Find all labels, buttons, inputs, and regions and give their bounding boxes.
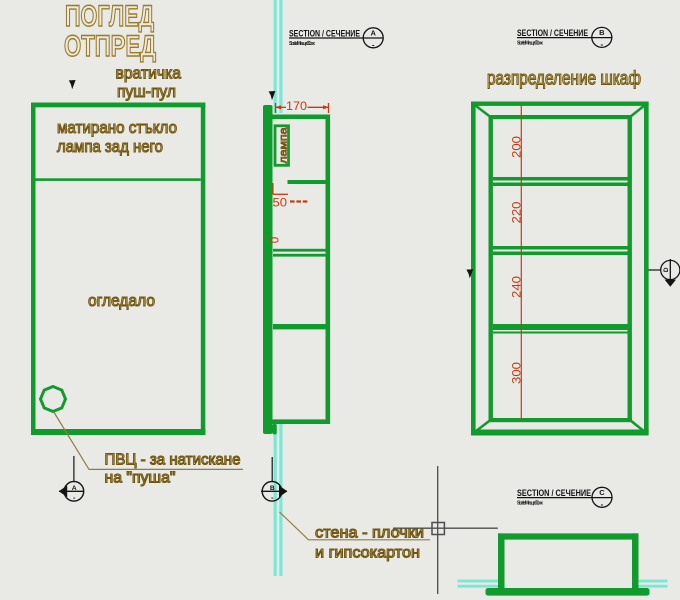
svg-text:D: D: [663, 267, 670, 272]
svg-text:Scale / Мащаб 1:xx: Scale / Мащаб 1:xx: [517, 499, 543, 506]
svg-text:лампа: лампа: [278, 127, 290, 163]
svg-text:-: -: [600, 40, 603, 49]
svg-text:SECTION / СЕЧЕНИЕ: SECTION / СЕЧЕНИЕ: [517, 28, 588, 38]
svg-text:300: 300: [512, 362, 524, 384]
svg-text:SECTION / СЕЧЕНИЕ: SECTION / СЕЧЕНИЕ: [289, 28, 360, 38]
svg-text:ПВЦ - за натискане: ПВЦ - за натискане: [105, 452, 241, 469]
svg-text:SECTION / СЕЧЕНИЕ: SECTION / СЕЧЕНИЕ: [517, 488, 591, 498]
svg-text:матирано стъкло: матирано стъкло: [57, 119, 177, 137]
svg-text:-: -: [601, 500, 604, 509]
svg-text:на "пуша": на "пуша": [105, 470, 176, 487]
svg-text:170: 170: [286, 101, 307, 113]
svg-text:ПОГЛЕД: ПОГЛЕД: [65, 0, 154, 33]
svg-text:200: 200: [512, 136, 524, 158]
svg-text:50: 50: [273, 197, 288, 209]
svg-text:вратичка: вратичка: [116, 64, 182, 82]
svg-text:ОТПРЕД: ОТПРЕД: [64, 30, 156, 63]
svg-text:C: C: [599, 488, 605, 497]
svg-text:240: 240: [512, 276, 524, 298]
svg-text:0: 0: [270, 237, 282, 243]
svg-text:лампа зад него: лампа зад него: [57, 138, 163, 156]
svg-text:Scale / Мащаб 1:xx: Scale / Мащаб 1:xx: [289, 40, 315, 47]
svg-text:и гипсокартон: и гипсокартон: [315, 545, 420, 562]
svg-text:огледало: огледало: [88, 292, 155, 310]
svg-text:Scale / Мащаб 1:xx: Scale / Мащаб 1:xx: [517, 39, 543, 46]
svg-text:разпределение шкаф: разпределение шкаф: [487, 69, 641, 90]
svg-text:220: 220: [512, 202, 524, 224]
svg-text:B: B: [270, 485, 275, 492]
svg-text:B: B: [599, 28, 605, 37]
svg-text:A: A: [72, 485, 77, 492]
svg-text:A: A: [370, 29, 376, 38]
svg-text:-: -: [372, 41, 375, 50]
svg-text:пуш-пул: пуш-пул: [117, 83, 176, 101]
svg-text:стена - плочки: стена - плочки: [315, 525, 424, 542]
